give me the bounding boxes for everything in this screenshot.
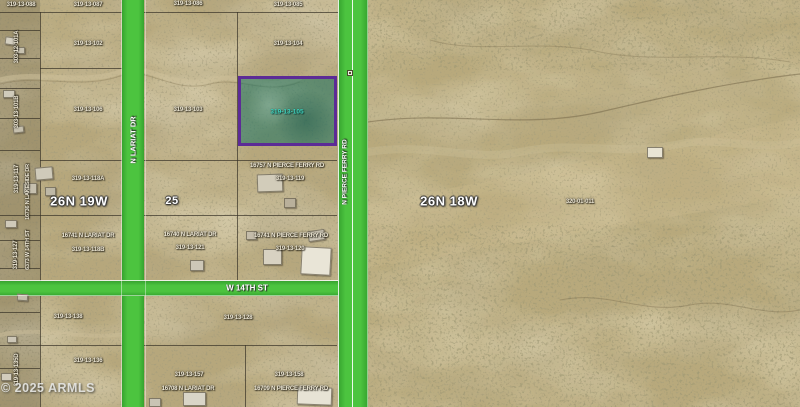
building xyxy=(183,392,206,406)
parcel-label: 319-13-138 xyxy=(54,314,83,320)
address-label: 16708 N LARIAT DR xyxy=(162,386,215,392)
road-edge-line xyxy=(352,0,353,407)
township-label-26n19w: 26N 19W xyxy=(50,194,108,209)
address-label: 16757 N PIERCE FERRY RD xyxy=(250,163,324,169)
building xyxy=(34,166,53,181)
armls-copyright-watermark: © 2025 ARMLS xyxy=(1,381,95,395)
parcel-line xyxy=(0,345,337,346)
parcel-line xyxy=(0,240,40,241)
address-label: 16741 N LARIAT DR xyxy=(62,233,115,239)
parcel-label: 319-13-086 xyxy=(174,1,203,7)
road-w-14th xyxy=(0,281,338,296)
parcel-line xyxy=(0,215,337,216)
road-edge-line xyxy=(145,0,146,407)
building xyxy=(1,373,12,381)
address-label: 6373 W 14TH ST xyxy=(25,230,31,270)
road-label-w-14th: W 14TH ST xyxy=(226,284,268,293)
building xyxy=(149,398,161,407)
parcel-label: 319-13-087 xyxy=(74,2,103,8)
building xyxy=(190,260,204,271)
address-label: 16709 N PIERCE FERRY RD xyxy=(254,386,328,392)
township-label-26n18w: 26N 18W xyxy=(420,194,478,209)
address-label: 16736 N LAKESIDE DR xyxy=(25,164,31,220)
parcel-label: 303-12-101A xyxy=(14,31,20,64)
road-label-lariat: N LARIAT DR xyxy=(129,116,138,163)
parcel-line xyxy=(0,150,40,151)
parcel-label: 319-13-104 xyxy=(274,41,303,47)
road-edge-line xyxy=(121,0,122,407)
parcel-label: 319-13-121 xyxy=(176,245,205,251)
parcel-label: 319-13-120 xyxy=(276,246,305,252)
parcel-label: 319-13-127 xyxy=(13,241,19,270)
parcel-line xyxy=(40,68,122,69)
parcel-line xyxy=(0,88,40,89)
road-edge-line xyxy=(0,295,338,296)
parcel-label: 319-13-136 xyxy=(74,358,103,364)
parcel-label: 319-13-118A xyxy=(72,176,105,182)
parcel-line xyxy=(0,58,40,59)
parcel-label: 320-01-011 xyxy=(566,199,594,205)
parcel-label: 319-13-103 xyxy=(174,107,203,113)
parcel-label: 319-13-119 xyxy=(276,176,304,182)
building xyxy=(5,220,17,228)
road-label-pierce-ferry: N PIERCE FERRY RD xyxy=(342,139,349,204)
section-number-label: 25 xyxy=(165,195,178,207)
parcel-line xyxy=(245,345,246,407)
parcel-label: 319-13-085 xyxy=(274,2,303,8)
road-edge-line xyxy=(367,0,368,407)
parcel-label: 319-13-157 xyxy=(175,372,204,378)
parcel-line xyxy=(0,368,40,369)
parcel-label: 319-13-102 xyxy=(74,41,103,47)
highlighted-parcel-apn: 319-13-105 xyxy=(270,109,303,116)
parcel-line xyxy=(0,268,40,269)
parcel-label: 319-13-117 xyxy=(14,165,20,193)
parcel-line xyxy=(0,30,40,31)
building xyxy=(7,336,17,343)
parcel-label: 319-13-158 xyxy=(275,372,304,378)
road-edge-line xyxy=(338,0,339,407)
building xyxy=(300,246,331,276)
address-label: 16740 N LARIAT DR xyxy=(164,232,217,238)
building xyxy=(647,147,663,158)
parcel-line xyxy=(0,118,40,119)
parcel-line xyxy=(237,12,238,280)
map-canvas[interactable]: 319-13-105 319-13-088319-13-087319-13-08… xyxy=(0,0,800,407)
parcel-line xyxy=(40,160,337,161)
parcel-label: 319-13-118B xyxy=(72,247,105,253)
parcel-line xyxy=(0,312,40,313)
parcel-label: 303-13-101B xyxy=(14,96,20,129)
address-label: 16741 N PIERCE FERRY RD xyxy=(254,233,328,239)
building xyxy=(284,198,296,208)
parcel-line xyxy=(0,12,345,13)
parcel-label: 319-13-106 xyxy=(74,107,103,113)
road-lariat xyxy=(122,0,144,407)
road-edge-line xyxy=(0,280,338,281)
parcel-label: 319-13-128 xyxy=(224,315,253,321)
parcel-line xyxy=(40,12,41,407)
section-corner-marker xyxy=(347,70,353,76)
parcel-label: 319-13-088 xyxy=(7,2,36,8)
